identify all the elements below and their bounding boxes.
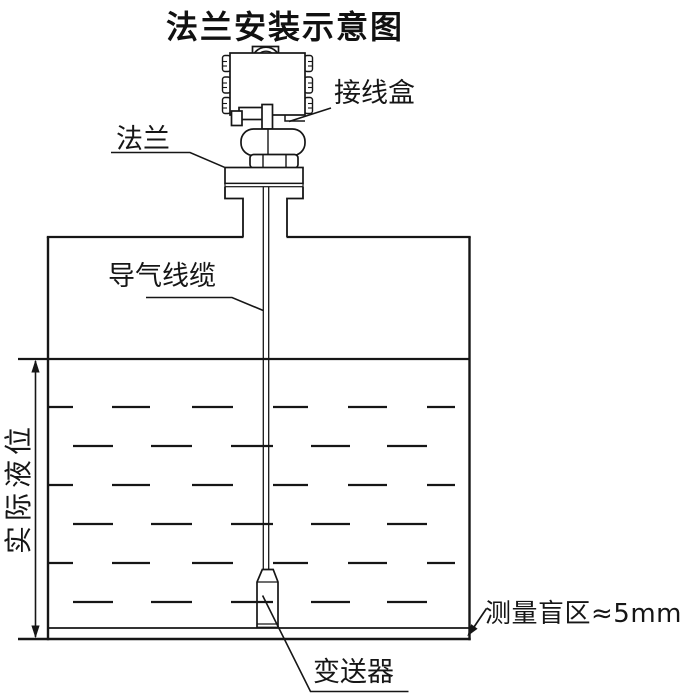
label-junction-box: 接线盒	[334, 79, 415, 109]
label-blind-zone: 测量盲区≈5mm	[485, 600, 682, 629]
arrowhead-up-icon	[31, 360, 39, 373]
transmitter-head	[223, 47, 313, 187]
swivel-fitting	[241, 129, 305, 156]
flange-plate	[225, 168, 303, 184]
gasket	[225, 184, 303, 187]
tank	[18, 237, 471, 640]
label-air-cable: 导气线缆	[108, 262, 216, 292]
mounting-neck	[225, 187, 303, 237]
liquid-dashes	[48, 407, 455, 602]
diagram-title: 法兰安装示意图	[135, 2, 435, 48]
hex-nut	[250, 155, 298, 169]
leader-air-cable	[146, 298, 263, 311]
stem-tube	[262, 105, 273, 130]
diagram-canvas: 法兰安装示意图 接线盒 法兰 导气线缆 实际液位 测量盲区≈5mm 变送器	[0, 0, 700, 700]
label-transmitter: 变送器	[313, 658, 394, 688]
arrowhead-down-icon	[31, 626, 39, 639]
label-flange: 法兰	[116, 125, 170, 155]
air-cable-line	[263, 187, 268, 570]
label-actual-level: 实际液位	[4, 418, 36, 558]
terminal-block	[232, 111, 243, 126]
